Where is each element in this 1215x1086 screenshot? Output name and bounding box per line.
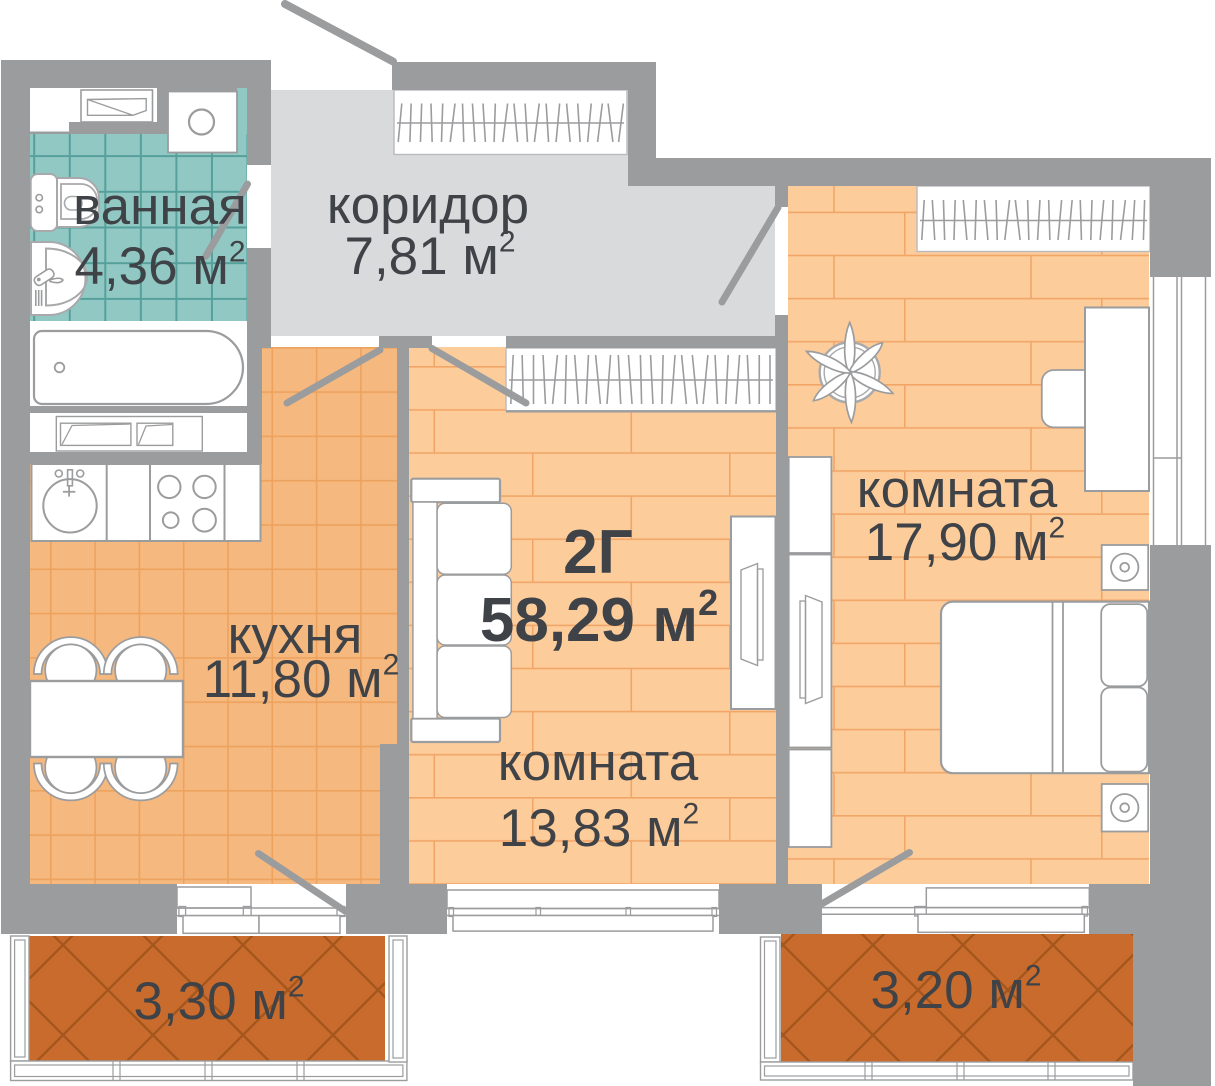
svg-text:4,36 м2: 4,36 м2 [74,236,245,296]
svg-text:2Г: 2Г [563,518,633,587]
svg-text:комната: комната [857,460,1058,519]
svg-text:17,90 м2: 17,90 м2 [865,512,1065,572]
svg-text:3,20 м2: 3,20 м2 [870,960,1041,1020]
svg-text:ванная: ванная [73,177,247,236]
svg-text:3,30 м2: 3,30 м2 [133,971,304,1031]
svg-text:комната: комната [498,733,699,792]
svg-text:13,83 м2: 13,83 м2 [499,798,699,858]
svg-text:58,29 м2: 58,29 м2 [480,582,718,655]
svg-text:7,81 м2: 7,81 м2 [344,226,515,286]
svg-text:11,80 м2: 11,80 м2 [203,649,400,709]
